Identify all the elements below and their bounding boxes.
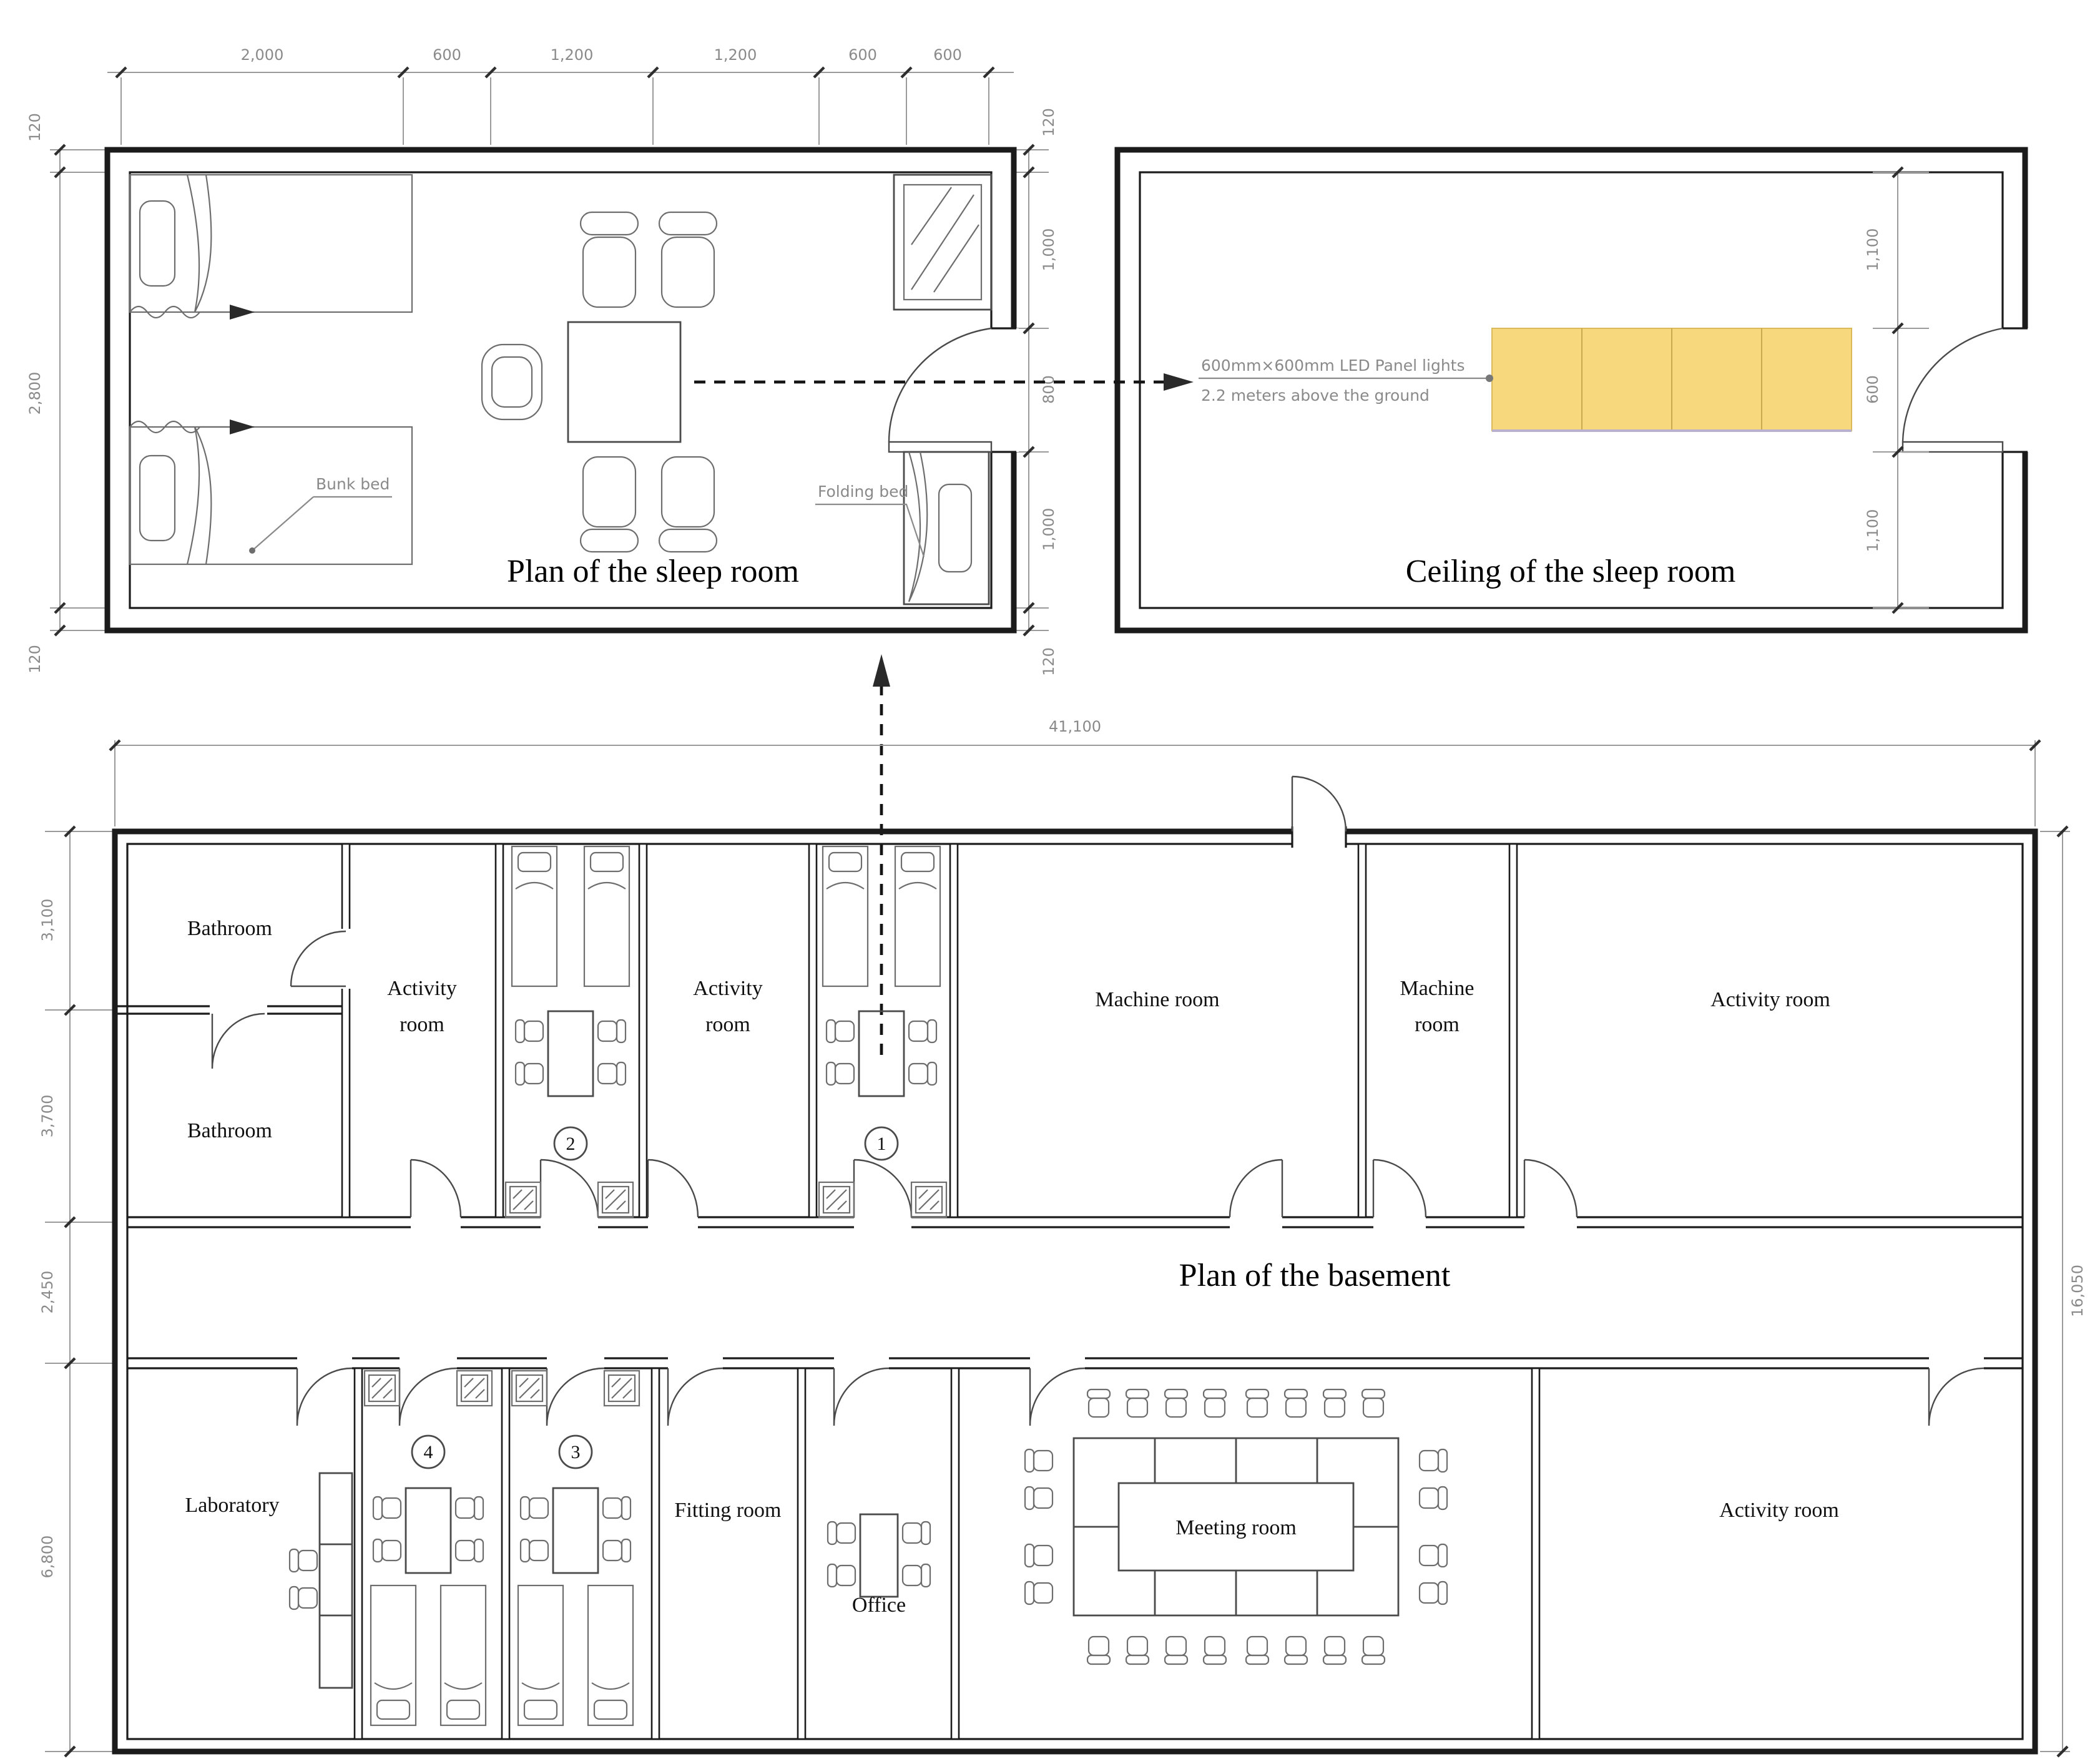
laboratory-desk <box>290 1473 352 1688</box>
basement-sleep-room-4: 4 <box>365 1371 492 1725</box>
room-label-laboratory: Laboratory <box>185 1494 279 1517</box>
chair-icon <box>290 1549 317 1572</box>
chair-icon <box>909 1020 936 1042</box>
dim-label: 41,100 <box>1049 718 1101 735</box>
dim-label: 120 <box>26 113 44 142</box>
dim-label: 1,000 <box>1040 508 1057 551</box>
door-icon <box>1929 1368 1984 1426</box>
dimension-chain-left: 3,100 3,700 2,450 6,800 <box>39 826 115 1757</box>
partition <box>1509 844 1517 1217</box>
room-number: 1 <box>877 1134 886 1154</box>
room-label-activity-bottom-right: Activity room <box>1719 1499 1839 1522</box>
dim-label: 120 <box>1040 647 1057 676</box>
table-icon <box>860 1514 898 1597</box>
wardrobe-icon <box>365 1371 400 1406</box>
sleep-plan-title: Plan of the sleep room <box>507 554 799 589</box>
wardrobe-icon <box>512 1371 547 1406</box>
table-icon <box>406 1488 451 1573</box>
dim-label: 3,100 <box>39 899 56 942</box>
chair-icon <box>1165 1637 1187 1664</box>
bed-icon <box>823 846 868 986</box>
dim-label: 2,800 <box>26 372 44 415</box>
chair-icon <box>603 1539 630 1562</box>
wardrobe-icon <box>911 1182 946 1217</box>
ceiling-plan-title: Ceiling of the sleep room <box>1406 554 1736 589</box>
door-icon <box>648 1160 698 1217</box>
wardrobe-icon <box>598 1182 633 1217</box>
chair-icon <box>581 212 638 307</box>
room-label-fitting: Fitting room <box>675 1499 782 1522</box>
partition <box>496 844 503 1217</box>
door-icon <box>668 1368 723 1426</box>
desk-icon <box>320 1473 352 1688</box>
armchair-icon <box>482 345 542 419</box>
door-icon <box>297 1368 352 1426</box>
wardrobe-icon <box>604 1371 639 1406</box>
bed-icon <box>512 846 557 986</box>
chair-icon <box>1285 1389 1307 1417</box>
room-number: 2 <box>566 1134 576 1154</box>
door-icon <box>1292 777 1346 831</box>
basement-plan-title: Plan of the basement <box>1179 1258 1451 1293</box>
floor-plan-drawing: 2,000 600 1,200 1,200 600 600 120 2,800 … <box>0 0 2100 1764</box>
dim-label: 600 <box>1864 375 1882 404</box>
door-icon <box>291 931 346 986</box>
led-note-line2: 2.2 meters above the ground <box>1201 386 1430 404</box>
chair-icon <box>1362 1637 1385 1664</box>
chair-icon <box>909 1062 936 1085</box>
dimension-chain-top: 2,000 600 1,200 1,200 600 600 <box>107 46 1014 145</box>
door-icon <box>411 1160 461 1217</box>
bed-icon <box>895 846 940 986</box>
dim-label: 600 <box>433 46 461 64</box>
chair-icon <box>1323 1637 1346 1664</box>
partition <box>798 1368 805 1739</box>
partition <box>950 844 958 1217</box>
chair-icon <box>1420 1487 1447 1509</box>
bed-icon <box>518 1585 563 1725</box>
chair-icon <box>603 1497 630 1519</box>
dim-label: 120 <box>1040 108 1057 137</box>
chair-icon <box>1362 1389 1385 1417</box>
door-icon <box>212 1014 265 1069</box>
chair-icon <box>290 1587 317 1609</box>
bunk-bed-icon <box>130 175 412 320</box>
door-icon <box>400 1368 457 1426</box>
chair-icon <box>373 1497 401 1519</box>
chair-icon <box>521 1497 548 1519</box>
dimension-overall-height: 16,050 <box>2040 826 2086 1757</box>
partition <box>951 1368 959 1739</box>
chair-icon <box>827 1062 854 1085</box>
room-label-bathroom-top: Bathroom <box>187 917 272 940</box>
chair-icon <box>1025 1487 1052 1509</box>
door-icon <box>541 1160 598 1217</box>
door-icon <box>1230 1160 1282 1217</box>
basement-sleep-room-3: 3 <box>512 1371 639 1725</box>
chair-icon <box>903 1564 930 1587</box>
chair-icon <box>1420 1449 1447 1472</box>
room-label-activity-right: Activity room <box>1710 988 1830 1011</box>
partition <box>639 844 647 1217</box>
outer-wall <box>115 831 2035 1752</box>
bed-icon <box>441 1585 486 1725</box>
folding-bed-icon <box>904 452 989 604</box>
dimension-chain-right: 120 1,000 800 1,000 120 <box>1016 108 1057 676</box>
office-furniture <box>828 1514 930 1597</box>
chair-icon <box>828 1522 855 1544</box>
room-label-activity2-line1: Activity <box>693 977 762 1000</box>
dimension-overall-width: 41,100 <box>110 718 2040 826</box>
led-panel <box>1492 328 1852 431</box>
chair-icon <box>1165 1389 1187 1417</box>
cabinet-icon <box>894 175 991 310</box>
chair-icon <box>1087 1637 1110 1664</box>
dim-label: 1,100 <box>1864 228 1882 272</box>
chair-icon <box>827 1020 854 1042</box>
dim-label: 2,450 <box>39 1271 56 1314</box>
partition <box>1358 844 1366 1217</box>
dim-label: 600 <box>848 46 877 64</box>
dim-label: 600 <box>933 46 962 64</box>
door-icon <box>1373 1160 1426 1217</box>
dim-label: 1,100 <box>1864 509 1882 552</box>
door-icon <box>889 328 991 452</box>
bed-icon <box>588 1585 633 1725</box>
room-label-office: Office <box>852 1594 906 1617</box>
table-icon <box>548 1011 593 1096</box>
partition <box>809 844 817 1217</box>
chair-icon <box>521 1539 548 1562</box>
chair-icon <box>1025 1582 1052 1604</box>
partition <box>355 1368 362 1739</box>
dim-label: 3,700 <box>39 1095 56 1138</box>
partition <box>1532 1368 1539 1739</box>
wardrobe-icon <box>506 1182 541 1217</box>
chair-icon <box>581 457 638 552</box>
partition <box>502 1368 509 1739</box>
chair-icon <box>373 1539 401 1562</box>
chair-icon <box>659 212 717 307</box>
room-label-machine-small-line1: Machine <box>1400 977 1474 1000</box>
door-icon <box>834 1368 889 1426</box>
room-label-machine-small-line2: room <box>1415 1013 1460 1036</box>
dim-label: 2,000 <box>241 46 284 64</box>
chair-icon <box>1323 1389 1346 1417</box>
chair-icon <box>659 457 717 552</box>
chair-icon <box>1246 1389 1268 1417</box>
room-label-activity2-line2: room <box>705 1013 750 1036</box>
chair-icon <box>1420 1544 1447 1567</box>
chair-icon <box>598 1062 626 1085</box>
chair-icon <box>456 1539 483 1562</box>
dimension-chain-right: 1,100 600 1,100 <box>1864 167 1929 613</box>
wardrobe-icon <box>457 1371 492 1406</box>
door-icon <box>854 1160 911 1217</box>
ceiling-plan: 600mm×600mm LED Panel lights 2.2 meters … <box>1117 150 2030 630</box>
bunk-bed-annotation: Bunk bed <box>249 475 392 554</box>
dim-label: 1,000 <box>1040 228 1057 272</box>
chair-icon <box>516 1020 543 1042</box>
led-note-line1: 600mm×600mm LED Panel lights <box>1201 356 1465 375</box>
reference-arrow-vertical <box>873 654 890 1055</box>
door-icon <box>547 1368 604 1426</box>
chair-icon <box>1420 1582 1447 1604</box>
room-label-meeting: Meeting room <box>1175 1516 1297 1539</box>
room-number: 3 <box>571 1442 581 1463</box>
wardrobe-icon <box>819 1182 854 1217</box>
led-annotation: 600mm×600mm LED Panel lights 2.2 meters … <box>1199 356 1493 404</box>
chair-icon <box>1246 1637 1268 1664</box>
door-icon <box>1030 1368 1085 1426</box>
table-icon <box>568 322 680 442</box>
bunk-bed-label: Bunk bed <box>316 475 390 493</box>
basement-sleep-room-2: 2 <box>506 846 633 1217</box>
chair-icon <box>1025 1544 1052 1567</box>
chair-icon <box>1204 1637 1226 1664</box>
sleep-room-plan: 2,000 600 1,200 1,200 600 600 120 2,800 … <box>26 46 1057 676</box>
partition <box>652 1368 659 1739</box>
dimension-chain-left: 120 2,800 120 <box>26 113 107 674</box>
dim-label: 800 <box>1040 375 1057 404</box>
room-number: 4 <box>424 1442 433 1463</box>
chair-icon <box>516 1062 543 1085</box>
dim-label: 16,050 <box>2069 1265 2086 1317</box>
bed-icon <box>371 1585 416 1725</box>
folding-bed-annotation: Folding bed <box>815 483 924 557</box>
dim-label: 1,200 <box>714 46 757 64</box>
door-icon <box>1903 328 2003 452</box>
chair-icon <box>598 1020 626 1042</box>
dim-label: 120 <box>26 645 44 674</box>
room-label-machine-large: Machine room <box>1095 988 1219 1011</box>
chair-icon <box>456 1497 483 1519</box>
chair-icon <box>1204 1389 1226 1417</box>
partition <box>342 844 350 1217</box>
chair-icon <box>1126 1637 1149 1664</box>
inner-wall <box>130 172 991 608</box>
chair-icon <box>1285 1637 1307 1664</box>
chair-icon <box>1025 1449 1052 1472</box>
room-label-bathroom-bottom: Bathroom <box>187 1119 272 1142</box>
table-icon <box>553 1488 598 1573</box>
chair-icon <box>828 1564 855 1587</box>
room-label-activity1-line1: Activity <box>387 977 456 1000</box>
door-icon <box>1524 1160 1577 1217</box>
chair-icon <box>1126 1389 1149 1417</box>
basement-plan: 41,100 3,100 3,700 2,450 6,800 16,050 <box>39 718 2086 1757</box>
chair-icon <box>903 1522 930 1544</box>
dim-label: 1,200 <box>551 46 594 64</box>
chair-icon <box>1087 1389 1110 1417</box>
dim-label: 6,800 <box>39 1536 56 1579</box>
folding-bed-label: Folding bed <box>818 483 908 501</box>
room-label-activity1-line2: room <box>400 1013 444 1036</box>
bed-icon <box>584 846 629 986</box>
